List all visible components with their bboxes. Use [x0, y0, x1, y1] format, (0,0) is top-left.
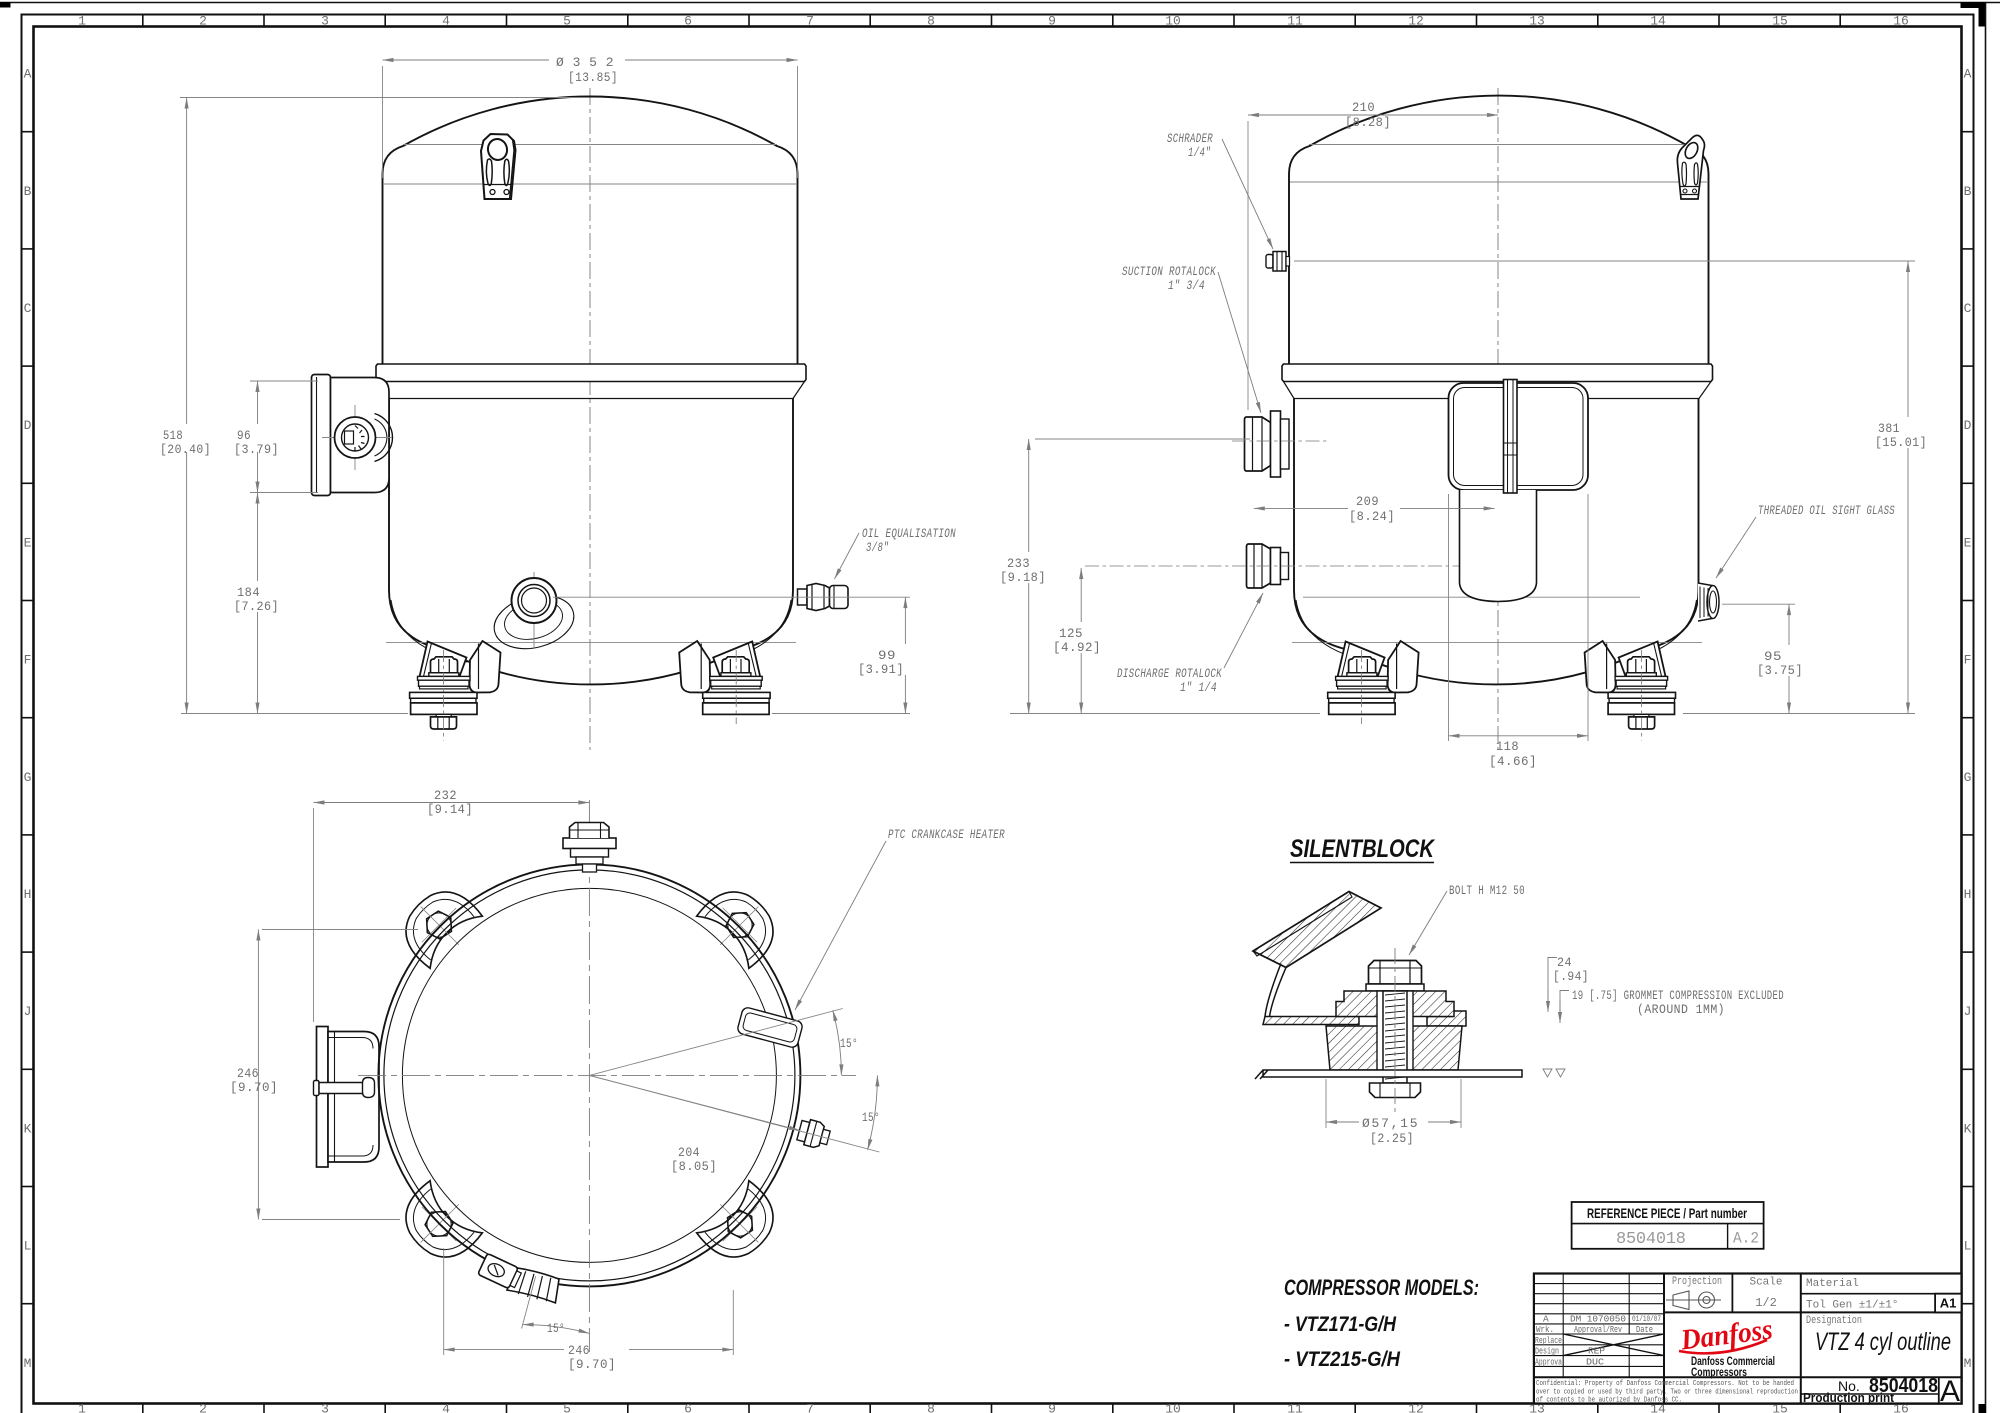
- svg-text:1/2: 1/2: [1755, 1296, 1777, 1310]
- svg-text:[13.85]: [13.85]: [568, 70, 618, 85]
- svg-text:246: 246: [237, 1066, 259, 1081]
- svg-text:[8.24]: [8.24]: [1349, 509, 1395, 524]
- svg-text:[8.28]: [8.28]: [1345, 115, 1391, 130]
- svg-text:Approval/Rev: Approval/Rev: [1574, 1324, 1622, 1335]
- svg-text:15°: 15°: [547, 1321, 565, 1336]
- svg-text:5: 5: [563, 1402, 571, 1413]
- svg-text:10: 10: [1165, 14, 1181, 29]
- svg-text:REFERENCE PIECE / Part number: REFERENCE PIECE / Part number: [1587, 1205, 1747, 1221]
- svg-text:DUC: DUC: [1586, 1357, 1604, 1368]
- svg-text:A: A: [1543, 1314, 1549, 1325]
- svg-text:8504018: 8504018: [1616, 1230, 1686, 1249]
- svg-text:E: E: [1964, 535, 1972, 550]
- svg-text:118: 118: [1496, 739, 1519, 754]
- svg-text:Production print: Production print: [1803, 1390, 1895, 1405]
- svg-text:- VTZ171-G/H: - VTZ171-G/H: [1284, 1313, 1397, 1336]
- svg-text:[4.66]: [4.66]: [1489, 754, 1537, 769]
- svg-text:K: K: [1964, 1121, 1972, 1136]
- svg-text:BOLT H M12 50: BOLT H M12 50: [1449, 883, 1525, 898]
- svg-text:Tol Gen ±1/±1°: Tol Gen ±1/±1°: [1806, 1300, 1898, 1312]
- svg-text:[20.40]: [20.40]: [160, 442, 211, 457]
- svg-text:Material: Material: [1806, 1278, 1859, 1290]
- svg-text:210: 210: [1352, 100, 1375, 115]
- svg-text:8: 8: [927, 14, 935, 29]
- svg-text:SILENTBLOCK: SILENTBLOCK: [1290, 835, 1436, 863]
- svg-text:204: 204: [678, 1145, 700, 1160]
- svg-text:OIL EQUALISATION: OIL EQUALISATION: [862, 527, 956, 541]
- svg-text:12: 12: [1408, 1402, 1424, 1413]
- svg-text:Confidential: Property of Danf: Confidential: Property of Danfoss Commer…: [1536, 1380, 1794, 1388]
- svg-text:COMPRESSOR MODELS:: COMPRESSOR MODELS:: [1284, 1275, 1479, 1300]
- svg-text:5: 5: [563, 14, 571, 29]
- svg-text:K: K: [24, 1121, 32, 1136]
- svg-text:Scale: Scale: [1749, 1277, 1782, 1289]
- svg-text:15°: 15°: [862, 1110, 880, 1125]
- svg-text:518: 518: [163, 428, 183, 443]
- svg-text:[9.70]: [9.70]: [230, 1080, 278, 1095]
- svg-text:[9.70]: [9.70]: [568, 1357, 616, 1372]
- svg-text:2: 2: [199, 14, 207, 29]
- svg-text:J: J: [1964, 1004, 1972, 1019]
- svg-text:125: 125: [1059, 626, 1083, 641]
- svg-text:D: D: [1964, 418, 1972, 433]
- svg-text:E: E: [24, 535, 32, 550]
- svg-text:G: G: [1964, 770, 1972, 785]
- svg-text:A.2: A.2: [1733, 1230, 1759, 1248]
- svg-text:11: 11: [1287, 14, 1303, 29]
- svg-text:1: 1: [78, 1402, 86, 1413]
- svg-text:L: L: [1964, 1239, 1972, 1254]
- svg-text:REP: REP: [1588, 1346, 1605, 1357]
- svg-text:[4.92]: [4.92]: [1053, 640, 1101, 655]
- svg-text:B: B: [24, 184, 32, 199]
- svg-text:3: 3: [321, 14, 329, 29]
- svg-text:M: M: [24, 1356, 32, 1371]
- svg-text:1/4": 1/4": [1188, 146, 1211, 160]
- svg-text:2: 2: [199, 1402, 207, 1413]
- svg-text:Approva: Approva: [1535, 1357, 1562, 1368]
- svg-text:Compressors: Compressors: [1691, 1367, 1747, 1379]
- svg-text:H: H: [24, 887, 32, 902]
- svg-text:01/10/07: 01/10/07: [1632, 1315, 1661, 1324]
- svg-text:Wrk.: Wrk.: [1536, 1324, 1554, 1335]
- svg-text:[9.14]: [9.14]: [427, 802, 473, 817]
- svg-text:3: 3: [321, 1402, 329, 1413]
- svg-text:F: F: [1964, 653, 1972, 668]
- svg-text:15°: 15°: [840, 1036, 858, 1051]
- svg-text:(AROUND 1MM): (AROUND 1MM): [1637, 1002, 1725, 1017]
- svg-text:A: A: [1964, 67, 1972, 82]
- svg-text:A1: A1: [1940, 1296, 1957, 1311]
- svg-text:9: 9: [1048, 14, 1056, 29]
- svg-text:Projection: Projection: [1672, 1276, 1722, 1288]
- svg-text:G: G: [24, 770, 32, 785]
- svg-text:- VTZ215-G/H: - VTZ215-G/H: [1284, 1348, 1401, 1371]
- svg-text:THREADED OIL SIGHT GLASS: THREADED OIL SIGHT GLASS: [1758, 504, 1895, 518]
- svg-text:6: 6: [684, 1402, 692, 1413]
- svg-text:209: 209: [1356, 494, 1379, 509]
- svg-text:96: 96: [237, 428, 251, 443]
- svg-text:PTC CRANKCASE HEATER: PTC CRANKCASE HEATER: [888, 828, 1005, 842]
- svg-text:Date: Date: [1636, 1324, 1653, 1335]
- svg-text:4: 4: [442, 1402, 450, 1413]
- svg-text:[7.26]: [7.26]: [234, 599, 279, 614]
- svg-text:over to copied or used by thir: over to copied or used by third party. T…: [1536, 1389, 1798, 1397]
- svg-text:H: H: [1964, 887, 1972, 902]
- svg-text:1: 1: [78, 14, 86, 29]
- svg-text:D: D: [24, 418, 32, 433]
- svg-text:[9.18]: [9.18]: [1000, 570, 1046, 585]
- svg-text:Designation: Designation: [1806, 1315, 1862, 1327]
- svg-text:VTZ 4 cyl outline: VTZ 4 cyl outline: [1815, 1328, 1951, 1356]
- svg-text:[8.05]: [8.05]: [671, 1159, 717, 1174]
- svg-text:184: 184: [237, 585, 260, 600]
- svg-text:6: 6: [684, 14, 692, 29]
- svg-text:[.94]: [.94]: [1553, 969, 1589, 984]
- svg-text:Replace: Replace: [1535, 1335, 1562, 1346]
- svg-text:A: A: [24, 67, 32, 82]
- svg-text:233: 233: [1007, 556, 1030, 571]
- svg-text:99: 99: [878, 648, 896, 663]
- svg-text:[3.91]: [3.91]: [858, 662, 904, 677]
- svg-text:SUCTION ROTALOCK: SUCTION ROTALOCK: [1122, 265, 1216, 279]
- svg-text:SCHRADER: SCHRADER: [1167, 132, 1213, 146]
- svg-text:11: 11: [1287, 1402, 1303, 1413]
- svg-text:C: C: [24, 301, 32, 316]
- svg-text:12: 12: [1408, 14, 1424, 29]
- svg-text:95: 95: [1764, 649, 1782, 664]
- svg-text:381: 381: [1878, 421, 1900, 436]
- svg-text:3/8": 3/8": [866, 541, 889, 555]
- svg-text:15: 15: [1772, 14, 1788, 29]
- svg-text:232: 232: [434, 788, 457, 803]
- svg-text:of contents to be autorized by: of contents to be autorized by Danfoss C…: [1536, 1397, 1682, 1405]
- svg-text:[3.75]: [3.75]: [1757, 663, 1803, 678]
- svg-text:Design: Design: [1535, 1346, 1559, 1357]
- svg-text:DM 1070050: DM 1070050: [1570, 1314, 1626, 1325]
- svg-text:14: 14: [1650, 14, 1666, 29]
- svg-text:B: B: [1964, 184, 1972, 199]
- svg-text:[15.01]: [15.01]: [1875, 435, 1927, 450]
- svg-text:L: L: [24, 1239, 32, 1254]
- svg-text:F: F: [24, 653, 32, 668]
- svg-text:9: 9: [1048, 1402, 1056, 1413]
- svg-text:M: M: [1964, 1356, 1972, 1371]
- svg-text:13: 13: [1529, 14, 1545, 29]
- svg-text:19 [.75] GROMMET COMPRESSION E: 19 [.75] GROMMET COMPRESSION EXCLUDED: [1572, 988, 1784, 1003]
- svg-text:[3.79]: [3.79]: [234, 442, 279, 457]
- svg-text:J: J: [24, 1004, 32, 1019]
- svg-text:4: 4: [442, 14, 450, 29]
- svg-text:16: 16: [1893, 14, 1909, 29]
- svg-text:10: 10: [1165, 1402, 1181, 1413]
- svg-text:A: A: [1940, 1375, 1960, 1408]
- svg-text:C: C: [1964, 301, 1972, 316]
- svg-text:1" 1/4: 1" 1/4: [1180, 681, 1217, 695]
- svg-text:7: 7: [806, 14, 814, 29]
- svg-text:8: 8: [927, 1402, 935, 1413]
- svg-text:24: 24: [1557, 955, 1572, 970]
- svg-text:1" 3/4: 1" 3/4: [1168, 279, 1205, 293]
- svg-text:7: 7: [806, 1402, 814, 1413]
- svg-text:246: 246: [568, 1343, 590, 1358]
- svg-text:DISCHARGE ROTALOCK: DISCHARGE ROTALOCK: [1117, 667, 1222, 681]
- svg-text:[2.25]: [2.25]: [1370, 1131, 1414, 1146]
